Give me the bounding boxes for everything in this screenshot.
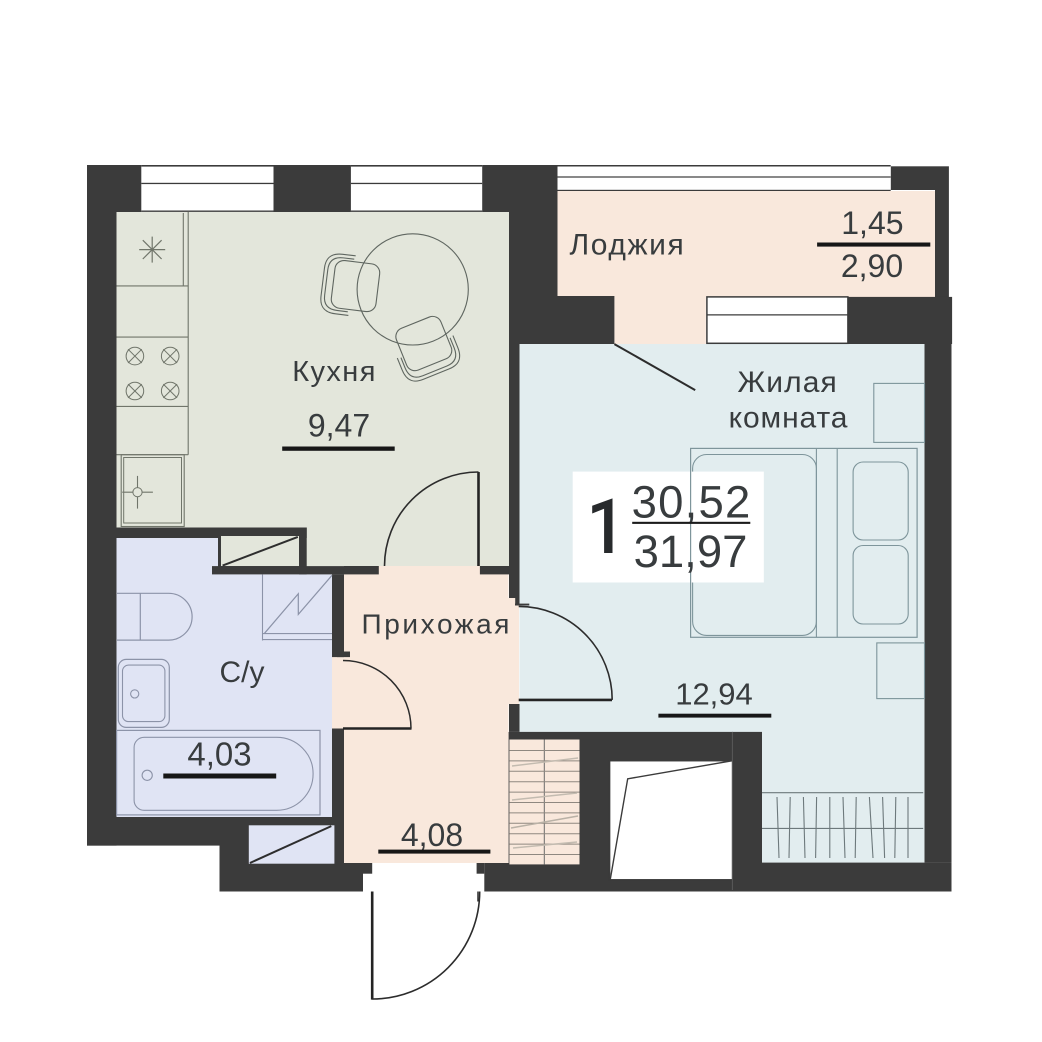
svg-text:Лоджия: Лоджия	[569, 229, 685, 262]
svg-text:Кухня: Кухня	[292, 356, 377, 388]
svg-text:1,45: 1,45	[841, 205, 903, 241]
svg-text:30,52: 30,52	[632, 477, 752, 528]
svg-text:4,03: 4,03	[187, 736, 251, 773]
svg-text:12,94: 12,94	[675, 677, 753, 712]
svg-text:комната: комната	[729, 402, 849, 435]
svg-text:31,97: 31,97	[634, 526, 748, 577]
svg-text:С/у: С/у	[220, 656, 265, 689]
svg-text:Прихожая: Прихожая	[362, 609, 513, 640]
svg-text:2,90: 2,90	[841, 248, 903, 284]
svg-text:4,08: 4,08	[401, 817, 463, 853]
svg-text:Жилая: Жилая	[737, 366, 837, 399]
svg-text:9,47: 9,47	[308, 408, 370, 444]
